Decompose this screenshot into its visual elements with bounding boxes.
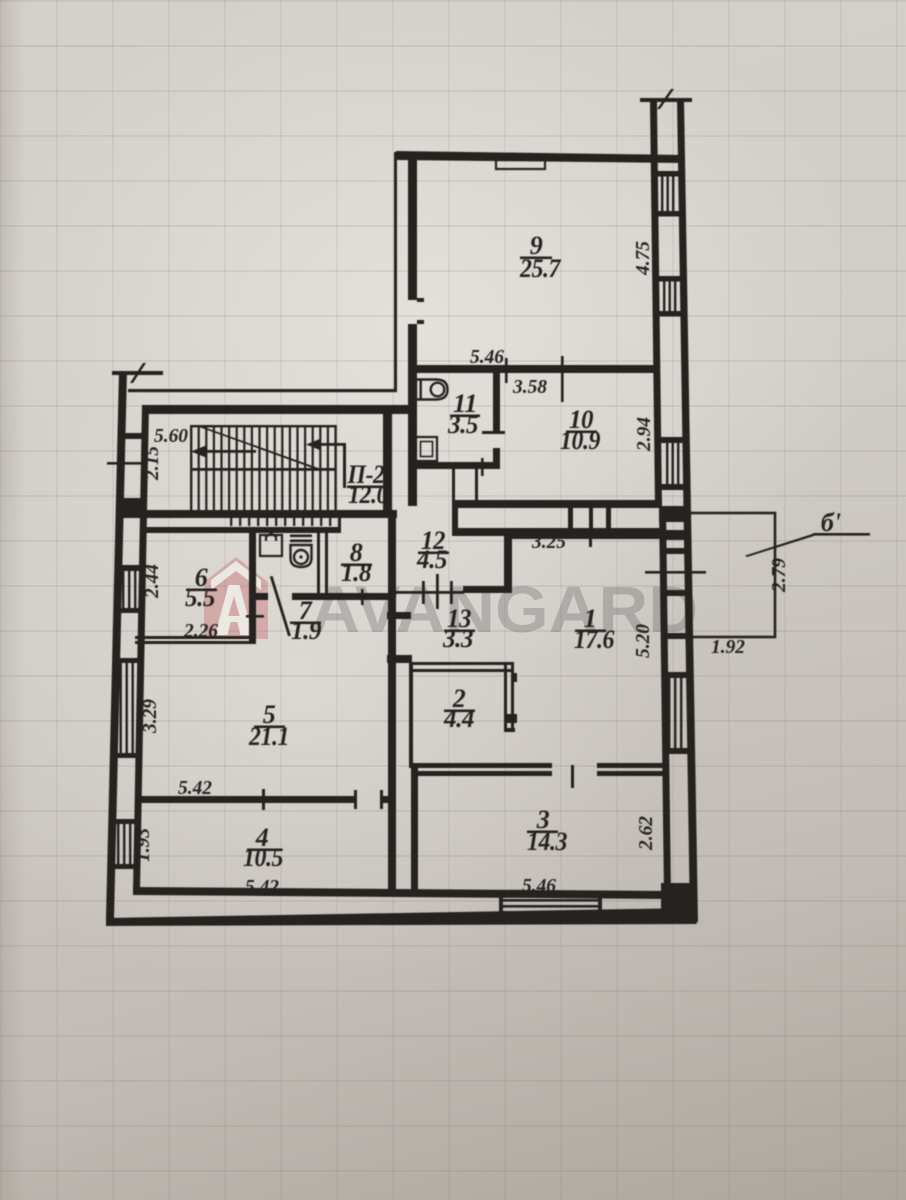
svg-text:5.60: 5.60 <box>154 426 188 447</box>
svg-text:5.46: 5.46 <box>470 347 504 368</box>
svg-text:5.42: 5.42 <box>245 877 279 898</box>
svg-text:4.5: 4.5 <box>416 545 447 574</box>
svg-text:2.15: 2.15 <box>142 446 163 481</box>
svg-text:1.8: 1.8 <box>341 558 371 587</box>
svg-text:3.3: 3.3 <box>442 624 473 653</box>
svg-text:14.3: 14.3 <box>527 827 567 856</box>
svg-text:1.92: 1.92 <box>711 637 745 658</box>
svg-text:3.5: 3.5 <box>447 410 478 439</box>
svg-text:5.20: 5.20 <box>633 624 654 658</box>
svg-text:5.46: 5.46 <box>522 876 556 897</box>
svg-text:21.1: 21.1 <box>248 722 289 751</box>
svg-text:3.25: 3.25 <box>531 532 566 553</box>
svg-text:25.7: 25.7 <box>519 254 561 283</box>
svg-text:2.26: 2.26 <box>183 621 218 642</box>
svg-text:10.9: 10.9 <box>560 426 600 455</box>
svg-text:10.5: 10.5 <box>243 843 283 872</box>
svg-text:3.29: 3.29 <box>140 699 161 734</box>
svg-text:5.5: 5.5 <box>185 583 215 612</box>
svg-text:17.6: 17.6 <box>574 625 614 654</box>
svg-text:5.42: 5.42 <box>178 778 212 799</box>
svg-text:4.4: 4.4 <box>443 704 474 733</box>
svg-text:б': б' <box>821 508 841 537</box>
svg-text:1.93: 1.93 <box>133 828 154 862</box>
svg-text:3.58: 3.58 <box>512 377 547 398</box>
svg-text:1.9: 1.9 <box>291 616 321 645</box>
svg-text:4.75: 4.75 <box>633 241 654 276</box>
svg-text:2.94: 2.94 <box>634 417 655 452</box>
svg-text:12.0: 12.0 <box>348 480 388 509</box>
svg-text:2.62: 2.62 <box>636 816 657 851</box>
svg-text:2.44: 2.44 <box>142 564 163 599</box>
svg-text:2.79: 2.79 <box>769 558 790 593</box>
